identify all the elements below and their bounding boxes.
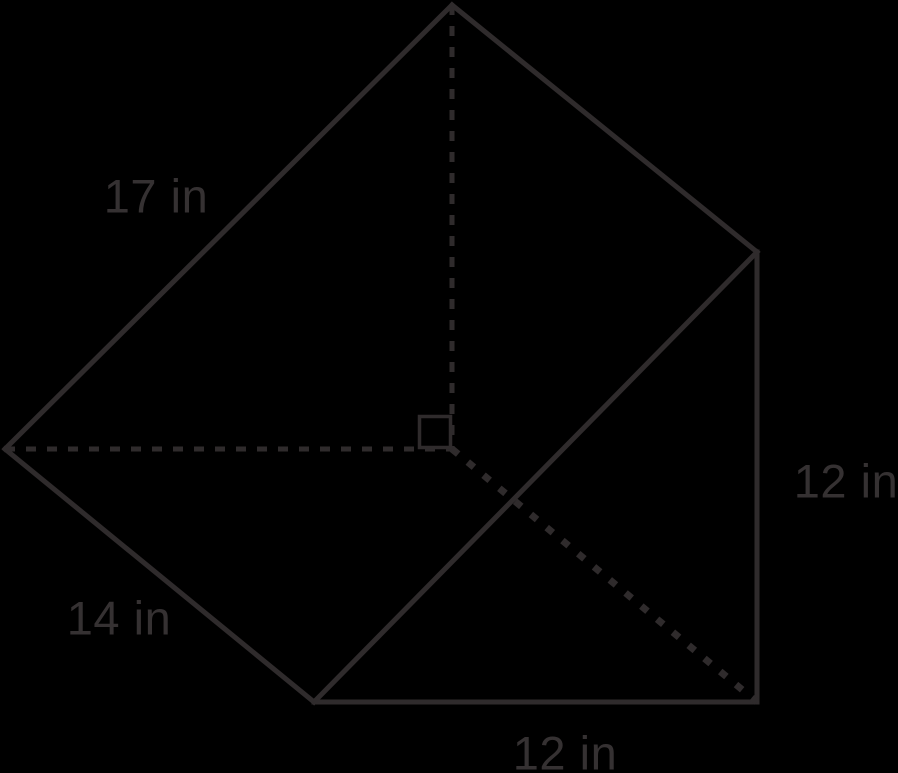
edge-ridge-top (452, 5, 757, 252)
edge-hidden-edge-dotted (452, 449, 757, 702)
prism-diagram: 17 in12 in14 in12 in (0, 0, 898, 773)
right-angle-marker (420, 417, 451, 448)
label-12-in-right: 12 in (794, 458, 898, 505)
edge-hypotenuse-front (5, 5, 452, 449)
edge-lateral-left (5, 449, 314, 702)
edge-front-diagonal (314, 252, 757, 702)
label-17-in: 17 in (104, 173, 208, 220)
prism-svg (0, 0, 898, 773)
label-12-in-bottom: 12 in (513, 730, 617, 773)
label-14-in: 14 in (67, 595, 171, 642)
